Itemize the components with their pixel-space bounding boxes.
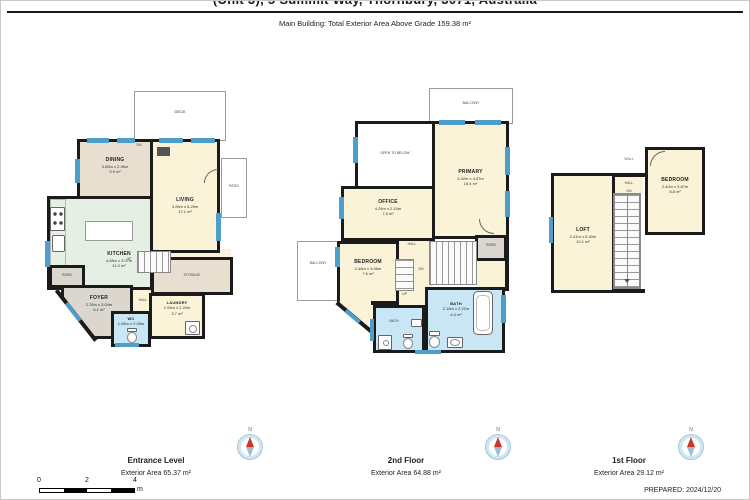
stairs-up-label: UP <box>121 257 137 262</box>
window <box>415 350 441 354</box>
compass-needle-north <box>687 437 695 447</box>
scale-unit: m <box>137 486 149 493</box>
stairs-down-1st <box>613 193 641 289</box>
prepared-date: PREPARED: 2024/12/20 <box>561 487 721 494</box>
deck-step-dn-label: DN <box>131 143 147 148</box>
page-title: (Unit 3), 5 Summit Way, Thornbury, 3071,… <box>1 0 749 7</box>
stairs-down-2nd <box>429 241 477 285</box>
stairs-down-1st-label: DN <box>615 189 643 194</box>
window <box>370 319 374 341</box>
bath-2nd-label: BATH 2.16m x 2.22m 4.4 m² <box>425 301 487 317</box>
room-robe-2nd <box>475 235 507 261</box>
robe-entrance-label: ROBE <box>49 273 85 278</box>
bath-small-label: BATH <box>379 319 409 324</box>
window <box>191 138 215 143</box>
scale-segment <box>40 489 64 492</box>
shower-icon <box>378 335 392 350</box>
compass-needle-north <box>494 437 502 447</box>
wall-segment <box>613 173 645 177</box>
bedroom-2nd-label: BEDROOM 2.46m x 3.06m 7.6 m² <box>337 259 399 277</box>
hall-1st-label: HALL <box>615 181 643 186</box>
compass-needle-south <box>494 447 502 457</box>
deck-area <box>134 91 226 141</box>
window <box>216 213 221 241</box>
stove-icon <box>50 207 65 231</box>
window <box>45 241 50 267</box>
window <box>439 120 465 125</box>
window <box>115 343 139 347</box>
compass-needle-north <box>246 437 254 447</box>
compass-entrance: N <box>235 427 265 469</box>
washer-drum <box>189 325 197 333</box>
loft-label: LOFT 2.41m x 5.40m 10.1 m² <box>551 227 615 245</box>
window <box>353 137 358 163</box>
scale-segment <box>64 489 88 492</box>
compass-disc <box>485 434 511 460</box>
balcony-top-label: BALCONY <box>429 101 513 106</box>
scale-tick-0: 0 <box>33 477 45 484</box>
hall-2nd-area-2 <box>477 261 507 287</box>
kitchen-label: KITCHEN 4.08m x 3.07m 11.0 m² <box>91 251 147 269</box>
deck-label: DECK <box>134 109 226 114</box>
window <box>501 295 506 323</box>
primary-label: PRIMARY 3.42m x 4.57m 15.4 m² <box>432 169 509 187</box>
window <box>475 120 501 125</box>
window <box>505 191 510 217</box>
bedroom-1st-label: BEDROOM 2.40m x 3.87m 8.8 m² <box>645 177 705 195</box>
compass-disc <box>237 434 263 460</box>
compass-n-label: N <box>235 427 265 433</box>
toilet-icon-2nd <box>429 336 440 348</box>
floor-title-2nd: 2nd Floor Exterior Area 64.88 m² <box>346 456 466 478</box>
shower-drain <box>383 340 389 346</box>
compass-n-label: N <box>483 427 513 433</box>
washer-icon <box>185 321 200 335</box>
open-to-below-label: OPEN TO BELOW <box>355 151 435 156</box>
scale-bar <box>39 488 135 493</box>
stairs-up-2nd-label: UP <box>395 292 414 297</box>
balcony-left-label: BALCONY <box>297 261 339 266</box>
living-label: LIVING 3.26m x 5.29m 17.1 m² <box>150 197 220 215</box>
scale-tick-4: 4 <box>129 477 141 484</box>
foyer-label: FOYER 2.76m x 3.04m 6.1 m² <box>67 295 131 313</box>
stair-rail <box>627 195 628 287</box>
balcony-left-area <box>297 241 339 301</box>
window <box>159 138 183 143</box>
compass-2nd: N <box>483 427 513 469</box>
storage-label: STORAGE <box>151 273 233 278</box>
robe-2nd-label: ROBE <box>475 243 507 248</box>
stair-direction-arrow <box>624 279 630 283</box>
dining-label: DINING 3.65m x 2.96m 9.9 m² <box>77 157 153 175</box>
page-subtitle: Main Building: Total Exterior Area Above… <box>1 19 749 28</box>
window <box>87 138 109 143</box>
balcony-top-area <box>429 88 513 124</box>
fireplace-icon <box>157 147 170 156</box>
wc-label: WC 1.06m x 2.05m <box>111 316 151 327</box>
stairs-down-2nd-label: DN <box>413 267 429 272</box>
compass-n-label: N <box>676 427 706 433</box>
sink-icon-2nd <box>450 339 460 346</box>
kitchen-island <box>85 221 133 241</box>
compass-needle-south <box>246 447 254 457</box>
kitchen-sink-icon <box>52 235 65 252</box>
patio-label: PATIO <box>221 184 247 189</box>
office-label: OFFICE 4.24m x 2.10m 7.8 m² <box>341 199 435 217</box>
scale-tick-2: 2 <box>81 477 93 484</box>
wall-label: WALL <box>615 157 643 162</box>
floor-title-entrance: Entrance Level Exterior Area 65.37 m² <box>96 456 216 478</box>
scale-segment <box>87 489 111 492</box>
sink-icon-small <box>411 319 422 327</box>
floor-title-1st: 1st Floor Exterior Area 29.12 m² <box>569 456 689 478</box>
wall-segment <box>371 301 399 305</box>
toilet-icon-small <box>403 338 413 349</box>
laundry-label: LAUNDRY 1.94m x 2.20m 3.7 m² <box>149 300 205 316</box>
title-divider <box>7 11 743 13</box>
wall-segment <box>613 289 645 293</box>
room-living <box>150 139 220 253</box>
hall-2nd-label: HALL <box>393 242 431 247</box>
wc-toilet-icon <box>127 332 137 343</box>
scale-segment <box>111 489 135 492</box>
floor-plan-sheet: (Unit 3), 5 Summit Way, Thornbury, 3071,… <box>0 0 750 500</box>
